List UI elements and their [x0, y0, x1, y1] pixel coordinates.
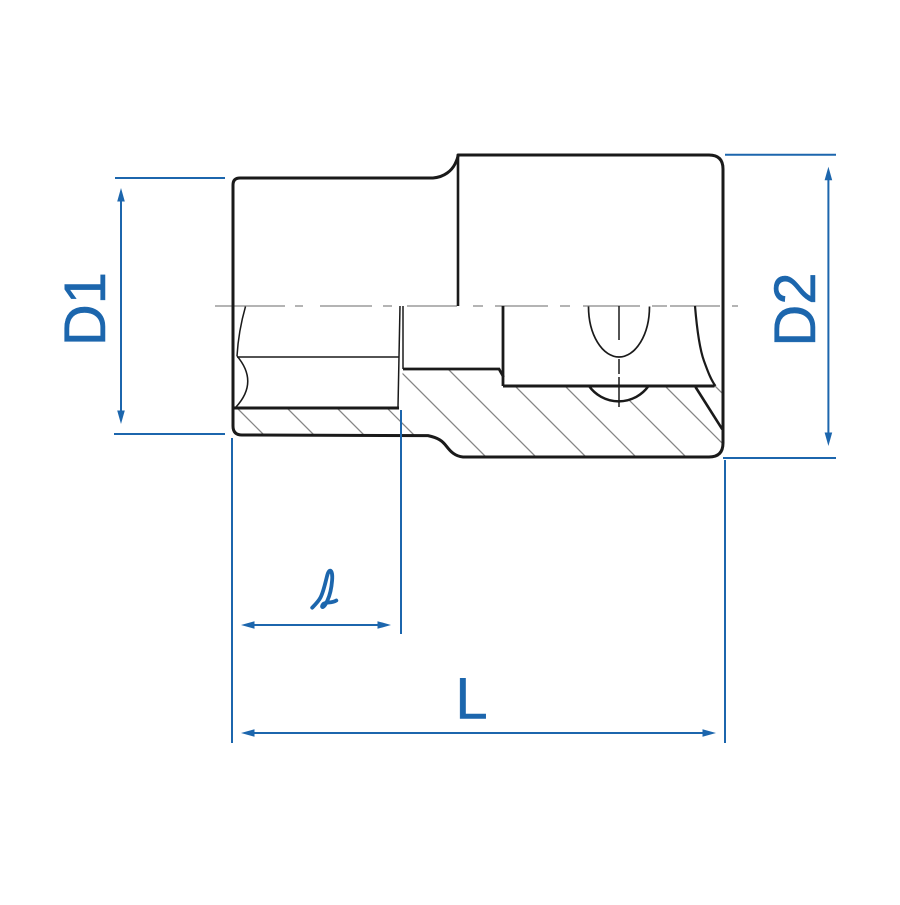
svg-text:D1: D1 [53, 272, 118, 346]
svg-text:D2: D2 [763, 272, 828, 346]
svg-text:L: L [455, 667, 487, 732]
